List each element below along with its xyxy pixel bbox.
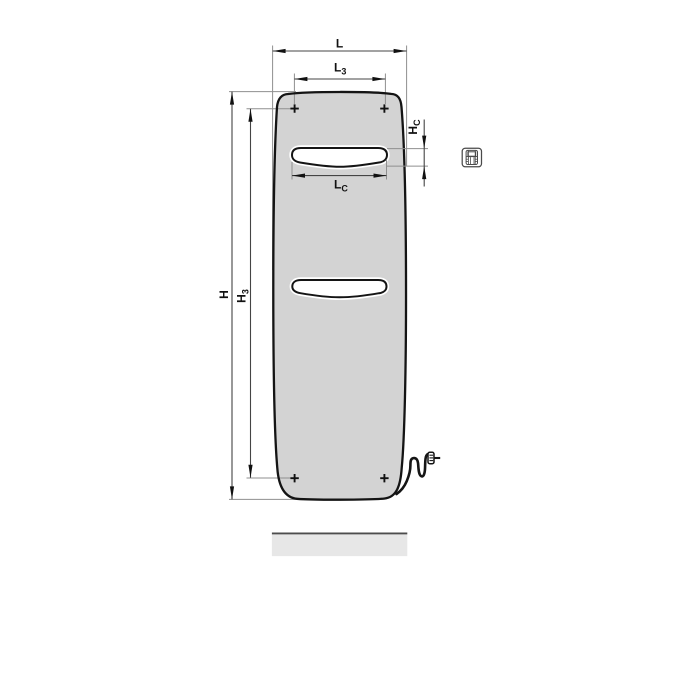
svg-text:HC: HC: [406, 119, 422, 135]
svg-text:H: H: [217, 290, 231, 299]
svg-text:L3: L3: [334, 61, 346, 77]
svg-text:L: L: [336, 37, 343, 51]
svg-text:H3: H3: [235, 289, 251, 303]
